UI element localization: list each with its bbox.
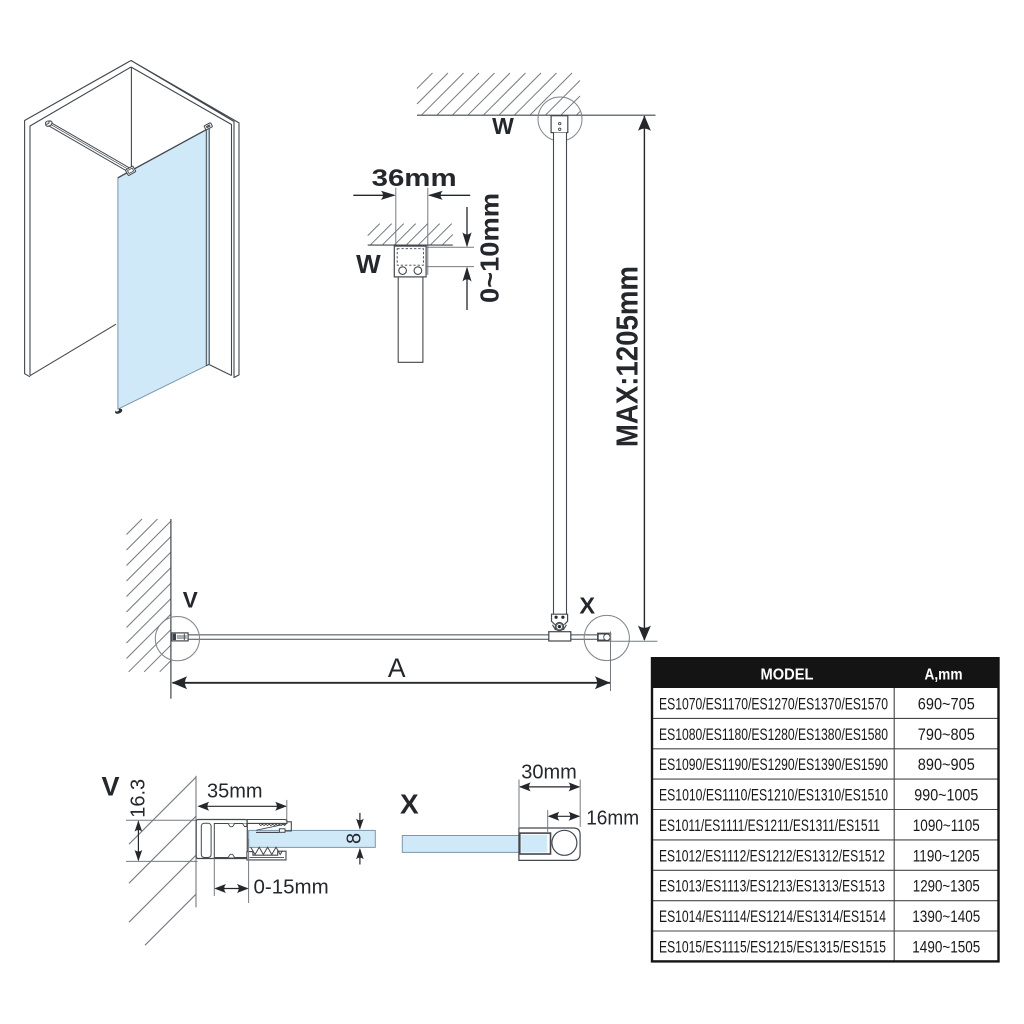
svg-text:ES1014/ES1114/ES1214/ES1314/ES: ES1014/ES1114/ES1214/ES1314/ES1514 bbox=[659, 907, 886, 926]
svg-text:890~905: 890~905 bbox=[918, 755, 975, 774]
svg-text:690~705: 690~705 bbox=[918, 694, 975, 713]
svg-text:ES1080/ES1180/ES1280/ES1380/ES: ES1080/ES1180/ES1280/ES1380/ES1580 bbox=[659, 725, 888, 744]
svg-text:1490~1505: 1490~1505 bbox=[912, 937, 980, 956]
svg-text:ES1010/ES1110/ES1210/ES1310/ES: ES1010/ES1110/ES1210/ES1310/ES1510 bbox=[659, 786, 888, 805]
svg-text:ES1015/ES1115/ES1215/ES1315/ES: ES1015/ES1115/ES1215/ES1315/ES1515 bbox=[659, 937, 886, 956]
svg-text:ES1013/ES1113/ES1213/ES1313/ES: ES1013/ES1113/ES1213/ES1313/ES1513 bbox=[659, 877, 885, 896]
svg-text:W: W bbox=[492, 113, 514, 139]
svg-text:1090~1105: 1090~1105 bbox=[913, 816, 980, 835]
svg-text:V: V bbox=[183, 587, 198, 612]
svg-text:35mm: 35mm bbox=[207, 780, 263, 802]
svg-text:0-15mm: 0-15mm bbox=[254, 876, 329, 899]
svg-text:990~1005: 990~1005 bbox=[914, 786, 978, 805]
svg-text:X: X bbox=[579, 593, 595, 619]
svg-text:MODEL: MODEL bbox=[761, 667, 814, 684]
svg-text:A: A bbox=[388, 653, 406, 683]
svg-text:0~10mm: 0~10mm bbox=[475, 193, 505, 303]
svg-text:ES1070/ES1170/ES1270/ES1370/ES: ES1070/ES1170/ES1270/ES1370/ES1570 bbox=[659, 694, 888, 713]
svg-text:790~805: 790~805 bbox=[918, 725, 975, 744]
svg-text:V: V bbox=[101, 772, 119, 802]
svg-text:16.3: 16.3 bbox=[127, 779, 149, 818]
svg-text:ES1011/ES1111/ES1211/ES1311/ES: ES1011/ES1111/ES1211/ES1311/ES1511 bbox=[659, 816, 880, 835]
svg-text:36mm: 36mm bbox=[372, 165, 457, 192]
svg-text:ES1090/ES1190/ES1290/ES1390/ES: ES1090/ES1190/ES1290/ES1390/ES1590 bbox=[659, 755, 888, 774]
svg-text:1290~1305: 1290~1305 bbox=[913, 877, 980, 896]
svg-text:A,mm: A,mm bbox=[925, 667, 963, 684]
svg-text:MAX:1205mm: MAX:1205mm bbox=[611, 266, 645, 447]
svg-text:8: 8 bbox=[343, 833, 365, 844]
svg-text:W: W bbox=[356, 249, 381, 279]
svg-text:16mm: 16mm bbox=[586, 808, 639, 830]
svg-text:ES1012/ES1112/ES1212/ES1312/ES: ES1012/ES1112/ES1212/ES1312/ES1512 bbox=[659, 846, 885, 865]
svg-text:X: X bbox=[400, 788, 419, 819]
svg-text:1190~1205: 1190~1205 bbox=[913, 846, 980, 865]
svg-text:30mm: 30mm bbox=[521, 762, 577, 784]
svg-text:1390~1405: 1390~1405 bbox=[912, 907, 980, 926]
